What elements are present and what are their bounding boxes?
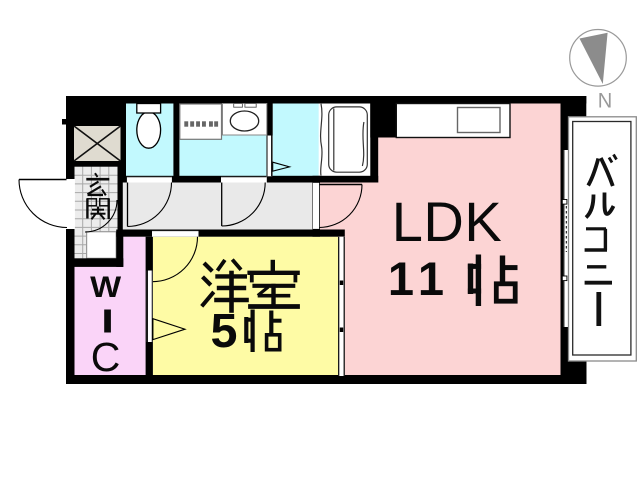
svg-text:1: 1 [418,252,444,305]
svg-text:LDK: LDK [392,190,502,253]
svg-text:1: 1 [388,252,414,305]
svg-text:N: N [598,89,613,112]
svg-text:C: C [91,334,121,380]
svg-text:W: W [90,271,122,304]
svg-text:5: 5 [211,304,238,358]
